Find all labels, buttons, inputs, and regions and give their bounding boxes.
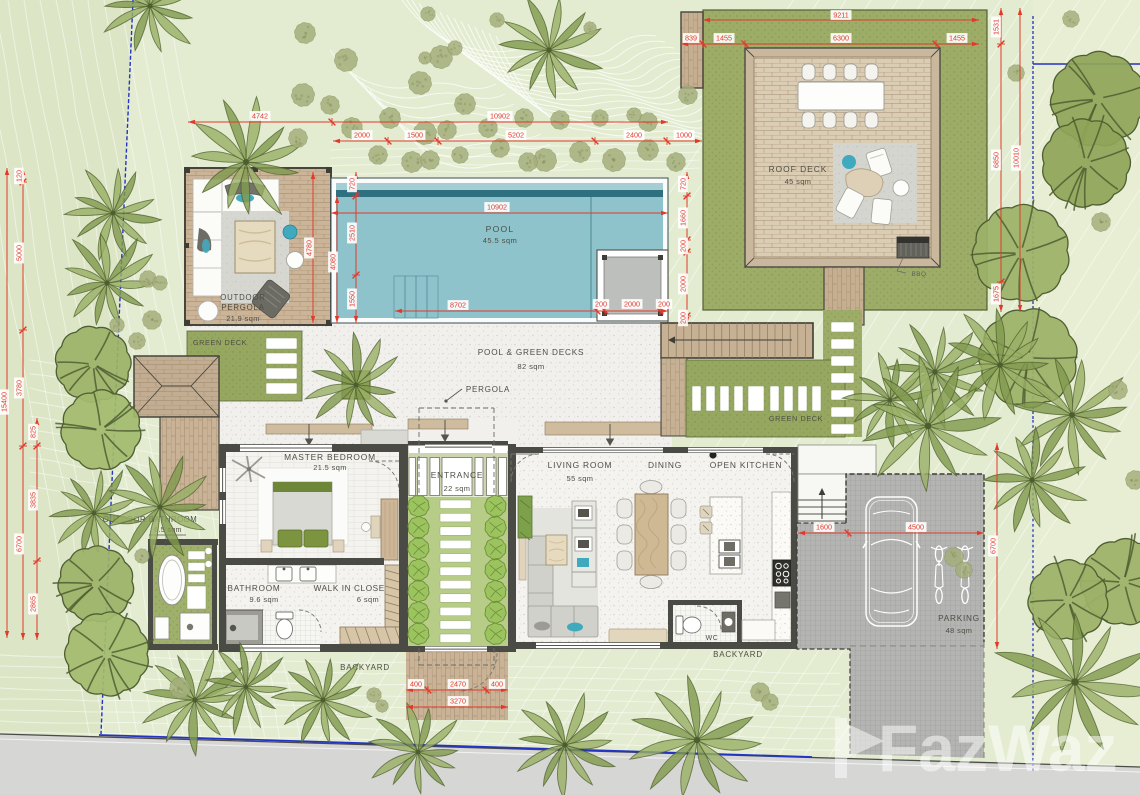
svg-text:4080: 4080: [329, 254, 338, 270]
svg-text:400: 400: [491, 680, 503, 689]
svg-text:6300: 6300: [833, 34, 849, 43]
svg-text:ROOF DECK: ROOF DECK: [769, 164, 828, 174]
svg-text:2400: 2400: [626, 131, 642, 140]
svg-text:45.5 sqm: 45.5 sqm: [483, 236, 517, 245]
svg-text:WC: WC: [706, 635, 719, 642]
svg-text:5000: 5000: [15, 245, 24, 261]
svg-text:4780: 4780: [305, 240, 314, 256]
svg-text:839: 839: [685, 34, 697, 43]
svg-text:OUTDOOR: OUTDOOR: [220, 293, 265, 302]
svg-text:22 sqm: 22 sqm: [444, 484, 471, 493]
svg-text:POOL: POOL: [486, 224, 515, 234]
svg-text:200: 200: [658, 300, 670, 309]
svg-text:LIVING ROOM: LIVING ROOM: [548, 460, 613, 470]
svg-text:4742: 4742: [252, 112, 268, 121]
svg-text:BACKYARD: BACKYARD: [713, 650, 763, 659]
svg-text:3270: 3270: [450, 697, 466, 706]
svg-text:48 sqm: 48 sqm: [946, 626, 973, 635]
svg-text:21.5 sqm: 21.5 sqm: [313, 463, 347, 472]
svg-text:1500: 1500: [407, 131, 423, 140]
svg-text:GREEN DECK: GREEN DECK: [193, 338, 247, 347]
svg-text:10010: 10010: [1012, 148, 1021, 168]
svg-text:2000: 2000: [679, 276, 688, 292]
svg-text:10902: 10902: [490, 112, 510, 121]
svg-text:1660: 1660: [679, 210, 688, 226]
svg-text:2470: 2470: [450, 680, 466, 689]
svg-text:2000: 2000: [624, 300, 640, 309]
svg-text:1600: 1600: [816, 523, 832, 532]
svg-text:FazWaz: FazWaz: [878, 711, 1118, 785]
svg-text:8702: 8702: [450, 301, 466, 310]
svg-text:MASTER BEDROOM: MASTER BEDROOM: [284, 452, 376, 462]
svg-text:BBQ: BBQ: [912, 271, 927, 278]
svg-text:DINING: DINING: [648, 460, 682, 470]
svg-text:1675: 1675: [992, 286, 1001, 302]
svg-text:PARKING: PARKING: [938, 614, 980, 623]
svg-text:21.9 sqm: 21.9 sqm: [226, 314, 260, 323]
svg-text:120: 120: [15, 170, 24, 182]
svg-text:1455: 1455: [949, 34, 965, 43]
svg-text:10902: 10902: [487, 203, 507, 212]
svg-text:GREEN DECK: GREEN DECK: [769, 414, 823, 423]
svg-text:55 sqm: 55 sqm: [567, 474, 594, 483]
svg-text:9211: 9211: [833, 11, 848, 20]
svg-text:BATHROOM: BATHROOM: [227, 584, 280, 593]
svg-text:200: 200: [595, 300, 607, 309]
svg-text:6700: 6700: [989, 538, 998, 554]
svg-text:POOL & GREEN DECKS: POOL & GREEN DECKS: [478, 348, 584, 357]
svg-text:45 sqm: 45 sqm: [785, 177, 812, 186]
svg-text:720: 720: [348, 178, 357, 190]
svg-text:WALK IN CLOSET: WALK IN CLOSET: [314, 584, 391, 593]
svg-text:200: 200: [679, 240, 688, 252]
svg-text:6850: 6850: [992, 152, 1001, 168]
svg-text:200: 200: [679, 312, 688, 324]
svg-text:720: 720: [679, 178, 688, 190]
svg-text:2865: 2865: [29, 596, 38, 612]
svg-text:PERGOLA: PERGOLA: [466, 385, 510, 394]
svg-text:4500: 4500: [908, 523, 924, 532]
svg-text:1455: 1455: [716, 34, 732, 43]
svg-text:82 sqm: 82 sqm: [517, 362, 544, 371]
svg-text:ENTRANCE: ENTRANCE: [431, 470, 483, 480]
svg-text:2000: 2000: [354, 131, 370, 140]
svg-text:1550: 1550: [348, 291, 357, 307]
svg-text:3835: 3835: [29, 492, 38, 508]
svg-text:9.6 sqm: 9.6 sqm: [249, 595, 278, 604]
svg-text:400: 400: [410, 680, 422, 689]
svg-text:PERGOLA: PERGOLA: [221, 303, 264, 312]
svg-text:BACKYARD: BACKYARD: [340, 663, 390, 672]
svg-text:OPEN KITCHEN: OPEN KITCHEN: [710, 460, 782, 470]
svg-text:1000: 1000: [676, 131, 692, 140]
svg-text:6700: 6700: [15, 536, 24, 552]
svg-text:15400: 15400: [0, 392, 9, 412]
svg-text:3780: 3780: [15, 380, 24, 396]
svg-text:5202: 5202: [508, 131, 524, 140]
svg-text:1531: 1531: [992, 19, 1001, 35]
svg-text:6 sqm: 6 sqm: [357, 595, 379, 604]
svg-text:825: 825: [29, 426, 38, 438]
svg-text:2510: 2510: [348, 225, 357, 241]
